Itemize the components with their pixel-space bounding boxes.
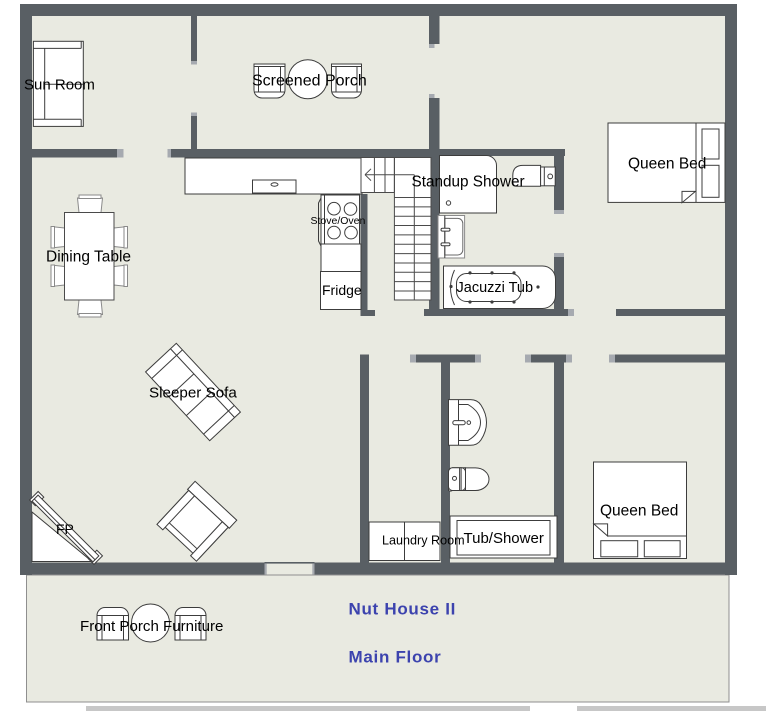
svg-text:Standup Shower: Standup Shower [412, 174, 525, 191]
svg-text:Main Floor: Main Floor [349, 648, 442, 667]
svg-text:Sleeper Sofa: Sleeper Sofa [149, 385, 237, 402]
svg-text:Sun Room: Sun Room [24, 77, 95, 94]
svg-text:Jacuzzi Tub: Jacuzzi Tub [457, 280, 534, 296]
svg-text:Screened Porch: Screened Porch [252, 73, 367, 90]
svg-text:Stove/Oven: Stove/Oven [311, 215, 366, 227]
svg-text:Dining Table: Dining Table [46, 249, 131, 266]
svg-text:Front Porch Furniture: Front Porch Furniture [80, 618, 223, 635]
svg-text:Tub/Shower: Tub/Shower [464, 530, 544, 547]
svg-text:Laundry Room: Laundry Room [382, 534, 465, 548]
svg-text:Queen Bed: Queen Bed [628, 156, 706, 173]
svg-text:Fridge: Fridge [322, 282, 362, 298]
svg-text:FP: FP [56, 521, 74, 537]
svg-text:Nut House II: Nut House II [349, 600, 457, 619]
svg-text:Queen Bed: Queen Bed [600, 503, 678, 520]
